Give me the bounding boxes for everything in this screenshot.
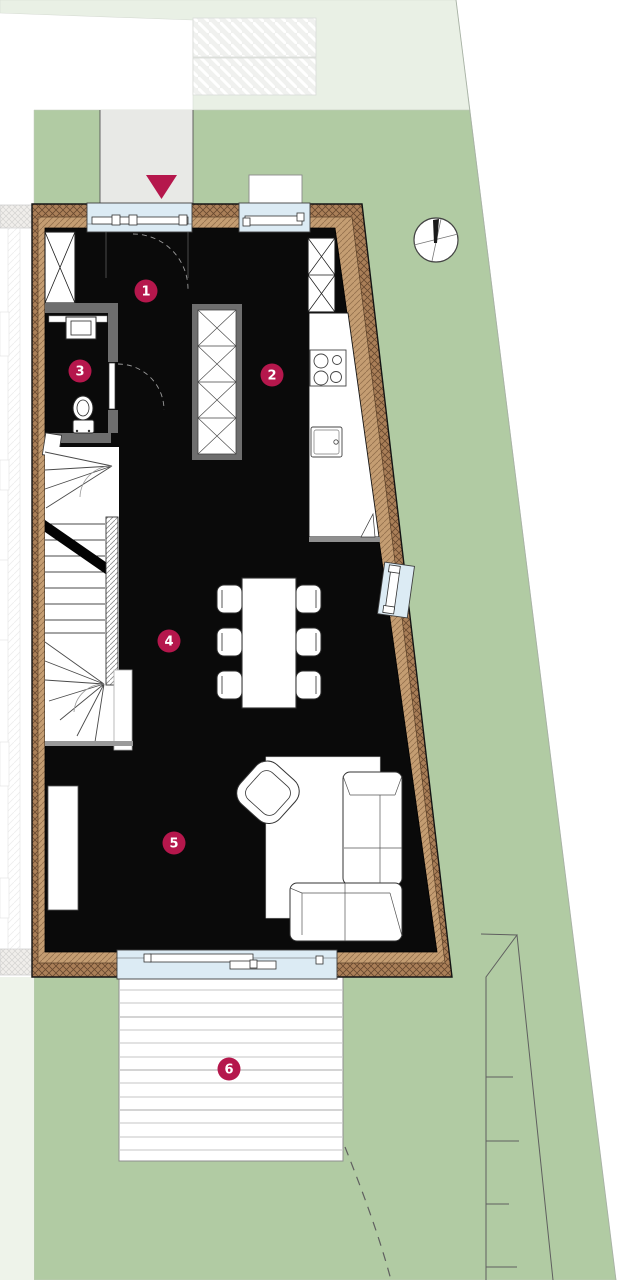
entrance-path (100, 110, 193, 205)
sideboard (48, 786, 78, 910)
room-marker-6[interactable]: 6 (218, 1058, 241, 1081)
tree-icon (414, 218, 458, 262)
kitchen-tall-cabinet (192, 304, 242, 460)
stair-threshold (45, 741, 133, 746)
kitchen-counter-end (309, 537, 380, 542)
room-marker-2[interactable]: 2 (261, 364, 284, 387)
svg-text:3: 3 (75, 365, 84, 380)
room-marker-5[interactable]: 5 (163, 832, 186, 855)
floor-plan-drawing: 1 2 3 4 5 6 (0, 0, 624, 1280)
washbasin (66, 317, 96, 339)
wc-wall-top (45, 303, 118, 313)
exterior-sill (249, 175, 302, 206)
svg-text:4: 4 (164, 635, 173, 650)
svg-text:5: 5 (169, 837, 178, 852)
svg-text:2: 2 (267, 369, 276, 384)
floor-plan-canvas: 1 2 3 4 5 6 (0, 0, 624, 1280)
room-marker-4[interactable]: 4 (158, 630, 181, 653)
kitchen-window-north (239, 203, 310, 232)
room-marker-3[interactable]: 3 (69, 360, 92, 383)
stair-newel-post (114, 670, 132, 750)
kitchen-sink (311, 427, 342, 457)
svg-text:1: 1 (141, 285, 150, 300)
svg-text:6: 6 (224, 1063, 233, 1078)
front-door-window (87, 203, 192, 232)
room-marker-1[interactable]: 1 (135, 280, 158, 303)
toilet (73, 396, 94, 433)
dining-area (217, 578, 321, 708)
sliding-door-south (117, 950, 337, 979)
wc-door-leaf (109, 363, 115, 409)
carport-hatch-lower (193, 58, 316, 95)
dining-table (242, 578, 296, 708)
site-strip-pale (0, 977, 34, 1280)
carport-hatch-upper (193, 18, 316, 57)
stair-spine-wall (106, 517, 118, 685)
kitchen-wall-cabinets (308, 238, 335, 312)
